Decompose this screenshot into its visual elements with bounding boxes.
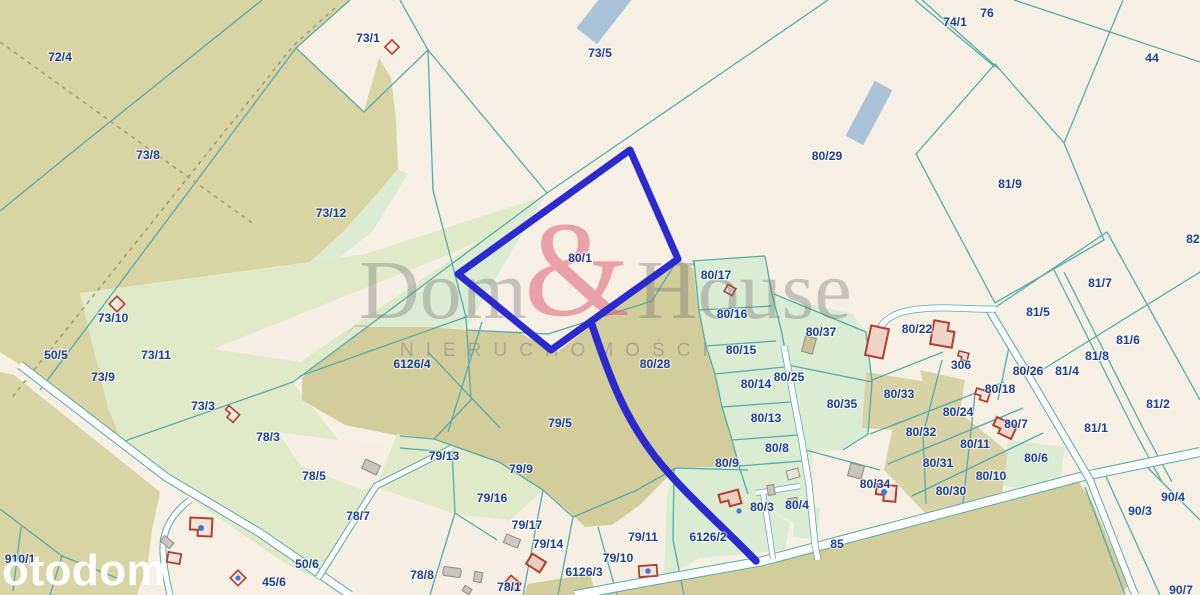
svg-text:80/7: 80/7 bbox=[1004, 417, 1028, 431]
svg-text:80/11: 80/11 bbox=[960, 437, 990, 451]
svg-text:72/4: 72/4 bbox=[48, 50, 72, 64]
svg-text:80/33: 80/33 bbox=[884, 387, 915, 401]
svg-text:80/16: 80/16 bbox=[717, 307, 748, 321]
svg-text:80/32: 80/32 bbox=[906, 425, 937, 439]
svg-text:80/6: 80/6 bbox=[1024, 451, 1048, 465]
svg-text:80/22: 80/22 bbox=[902, 322, 933, 336]
svg-text:45/6: 45/6 bbox=[262, 575, 286, 589]
svg-text:81/4: 81/4 bbox=[1055, 364, 1079, 378]
svg-text:79/10: 79/10 bbox=[603, 551, 634, 565]
svg-text:80/4: 80/4 bbox=[785, 498, 809, 512]
svg-text:80/29: 80/29 bbox=[812, 149, 843, 163]
svg-text:90/4: 90/4 bbox=[1161, 490, 1185, 504]
svg-text:79/9: 79/9 bbox=[509, 462, 533, 476]
svg-text:80/30: 80/30 bbox=[936, 484, 967, 498]
svg-text:6126/2: 6126/2 bbox=[689, 530, 726, 544]
svg-text:78/1: 78/1 bbox=[497, 580, 521, 594]
svg-text:76: 76 bbox=[980, 6, 994, 20]
svg-text:90/3: 90/3 bbox=[1128, 504, 1152, 518]
svg-text:81/2: 81/2 bbox=[1146, 397, 1170, 411]
svg-text:73/3: 73/3 bbox=[191, 399, 215, 413]
svg-text:78/3: 78/3 bbox=[256, 430, 280, 444]
svg-text:82/3: 82/3 bbox=[1186, 232, 1200, 246]
svg-text:80/34: 80/34 bbox=[860, 477, 891, 491]
svg-text:306: 306 bbox=[951, 358, 972, 372]
svg-text:79/11: 79/11 bbox=[628, 530, 658, 544]
svg-text:80/35: 80/35 bbox=[827, 397, 858, 411]
svg-text:6126/4: 6126/4 bbox=[393, 357, 430, 371]
svg-text:74/1: 74/1 bbox=[943, 15, 967, 29]
svg-text:78/5: 78/5 bbox=[302, 469, 326, 483]
svg-text:73/9: 73/9 bbox=[91, 370, 115, 384]
svg-text:79/14: 79/14 bbox=[533, 537, 564, 551]
svg-text:81/6: 81/6 bbox=[1116, 333, 1140, 347]
svg-text:85: 85 bbox=[830, 537, 844, 551]
svg-text:80/1: 80/1 bbox=[568, 251, 592, 265]
svg-text:80/37: 80/37 bbox=[806, 325, 837, 339]
svg-text:80/15: 80/15 bbox=[726, 343, 757, 357]
svg-text:44: 44 bbox=[1145, 51, 1159, 65]
svg-text:81/8: 81/8 bbox=[1085, 349, 1109, 363]
svg-text:81/1: 81/1 bbox=[1084, 421, 1108, 435]
svg-text:73/10: 73/10 bbox=[98, 311, 129, 325]
svg-text:81/7: 81/7 bbox=[1088, 276, 1112, 290]
svg-text:78/7: 78/7 bbox=[346, 509, 370, 523]
svg-text:otodom: otodom bbox=[2, 546, 166, 595]
svg-text:81/9: 81/9 bbox=[998, 177, 1022, 191]
svg-text:90/7: 90/7 bbox=[1169, 583, 1193, 595]
svg-text:Dom: Dom bbox=[359, 244, 527, 337]
svg-text:80/26: 80/26 bbox=[1013, 364, 1044, 378]
svg-text:79/16: 79/16 bbox=[477, 491, 508, 505]
svg-text:80/25: 80/25 bbox=[774, 370, 805, 384]
svg-text:80/24: 80/24 bbox=[943, 405, 974, 419]
svg-text:House: House bbox=[637, 244, 852, 337]
svg-text:79/5: 79/5 bbox=[548, 416, 572, 430]
svg-text:80/28: 80/28 bbox=[640, 357, 671, 371]
svg-text:80/10: 80/10 bbox=[976, 469, 1007, 483]
svg-text:80/9: 80/9 bbox=[715, 456, 739, 470]
svg-text:50/5: 50/5 bbox=[44, 348, 68, 362]
svg-text:73/8: 73/8 bbox=[136, 148, 160, 162]
svg-text:79/13: 79/13 bbox=[429, 449, 460, 463]
svg-text:6126/3: 6126/3 bbox=[565, 565, 602, 579]
svg-text:80/8: 80/8 bbox=[765, 441, 789, 455]
svg-text:78/8: 78/8 bbox=[410, 568, 434, 582]
svg-text:73/12: 73/12 bbox=[316, 206, 347, 220]
svg-text:73/1: 73/1 bbox=[356, 31, 380, 45]
svg-text:73/5: 73/5 bbox=[588, 46, 612, 60]
svg-text:80/17: 80/17 bbox=[701, 268, 732, 282]
svg-text:80/3: 80/3 bbox=[750, 500, 774, 514]
svg-text:80/13: 80/13 bbox=[751, 411, 782, 425]
svg-text:79/17: 79/17 bbox=[512, 518, 543, 532]
svg-text:80/18: 80/18 bbox=[985, 382, 1016, 396]
svg-text:50/6: 50/6 bbox=[295, 557, 319, 571]
svg-text:73/11: 73/11 bbox=[141, 348, 171, 362]
svg-text:80/14: 80/14 bbox=[741, 377, 772, 391]
svg-text:81/5: 81/5 bbox=[1026, 305, 1050, 319]
svg-text:80/31: 80/31 bbox=[923, 456, 954, 470]
